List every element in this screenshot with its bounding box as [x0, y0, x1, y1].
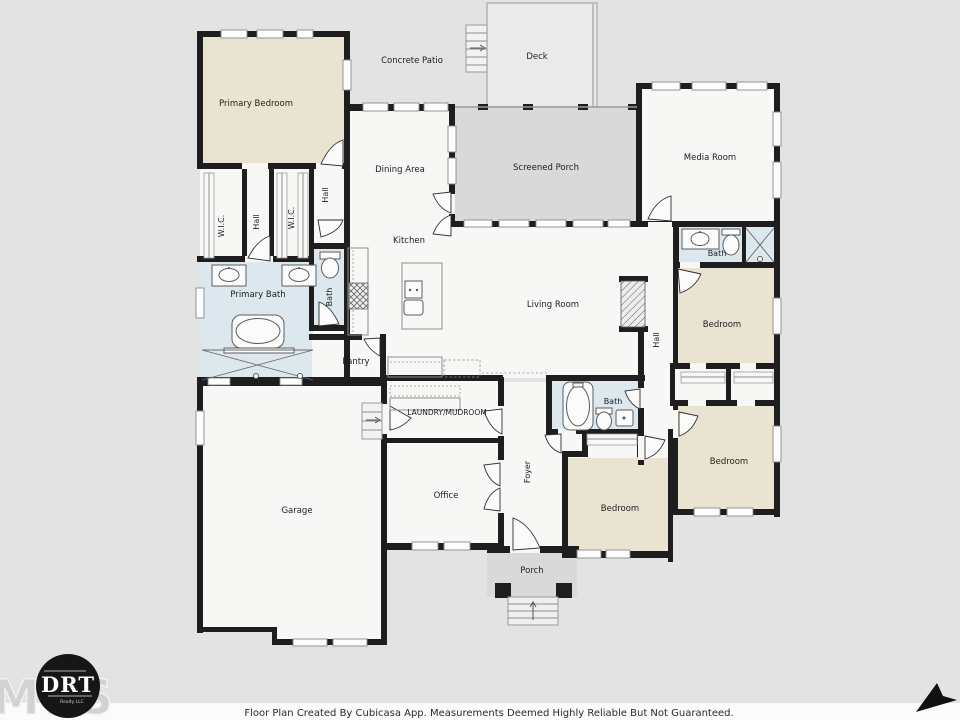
label-bedroom-s: Bedroom: [601, 504, 639, 514]
label-wic-left: W.I.C.: [217, 215, 226, 238]
drt-logo-subtext: Realty LLC: [60, 699, 84, 705]
drt-logo-text: DRT: [41, 672, 95, 697]
label-screened-porch: Screened Porch: [513, 163, 579, 173]
island-sink-icon: [404, 300, 423, 315]
range-icon: [349, 283, 368, 309]
label-porch: Porch: [520, 566, 543, 576]
label-hall-primary: Hall: [321, 187, 330, 202]
label-wic-right: W.I.C.: [287, 207, 296, 230]
drt-logo: DRT Realty LLC: [36, 654, 100, 718]
deck-stairs-icon: [466, 25, 487, 72]
label-concrete-patio: Concrete Patio: [381, 56, 443, 66]
label-pantry: Pantry: [342, 357, 369, 367]
floor-plan-page: Concrete Patio Deck Primary Bedroom Dini…: [0, 0, 960, 720]
porch-steps-icon: [508, 597, 558, 625]
label-hall-bath: Bath: [325, 288, 334, 307]
label-foyer: Foyer: [523, 460, 532, 483]
garage-steps-icon: [362, 403, 382, 439]
label-garage: Garage: [281, 506, 312, 516]
label-laundry-mudroom: LAUNDRY/MUDROOM: [407, 408, 486, 417]
label-hall-closets: Hall: [252, 214, 261, 229]
label-media-bath: Bath: [708, 249, 727, 258]
hall-bath-fixtures: [320, 252, 340, 278]
floor-plan-image: Concrete Patio Deck Primary Bedroom Dini…: [0, 0, 960, 720]
label-hall-bedrooms: Hall: [652, 332, 661, 347]
label-office: Office: [434, 491, 459, 501]
label-primary-bedroom: Primary Bedroom: [219, 99, 293, 109]
label-dining-area: Dining Area: [375, 165, 425, 175]
label-kitchen: Kitchen: [393, 236, 425, 246]
fireplace-icon: [621, 281, 645, 327]
label-living-room: Living Room: [527, 300, 579, 310]
footer-disclaimer: Floor Plan Created By Cubicasa App. Meas…: [244, 708, 733, 719]
label-bedroom-se: Bedroom: [710, 457, 748, 467]
label-bedroom-ne: Bedroom: [703, 320, 741, 330]
label-media-room: Media Room: [684, 153, 736, 163]
label-deck: Deck: [526, 52, 547, 62]
label-primary-bath: Primary Bath: [230, 290, 285, 300]
label-guest-bath: Bath: [604, 397, 623, 406]
